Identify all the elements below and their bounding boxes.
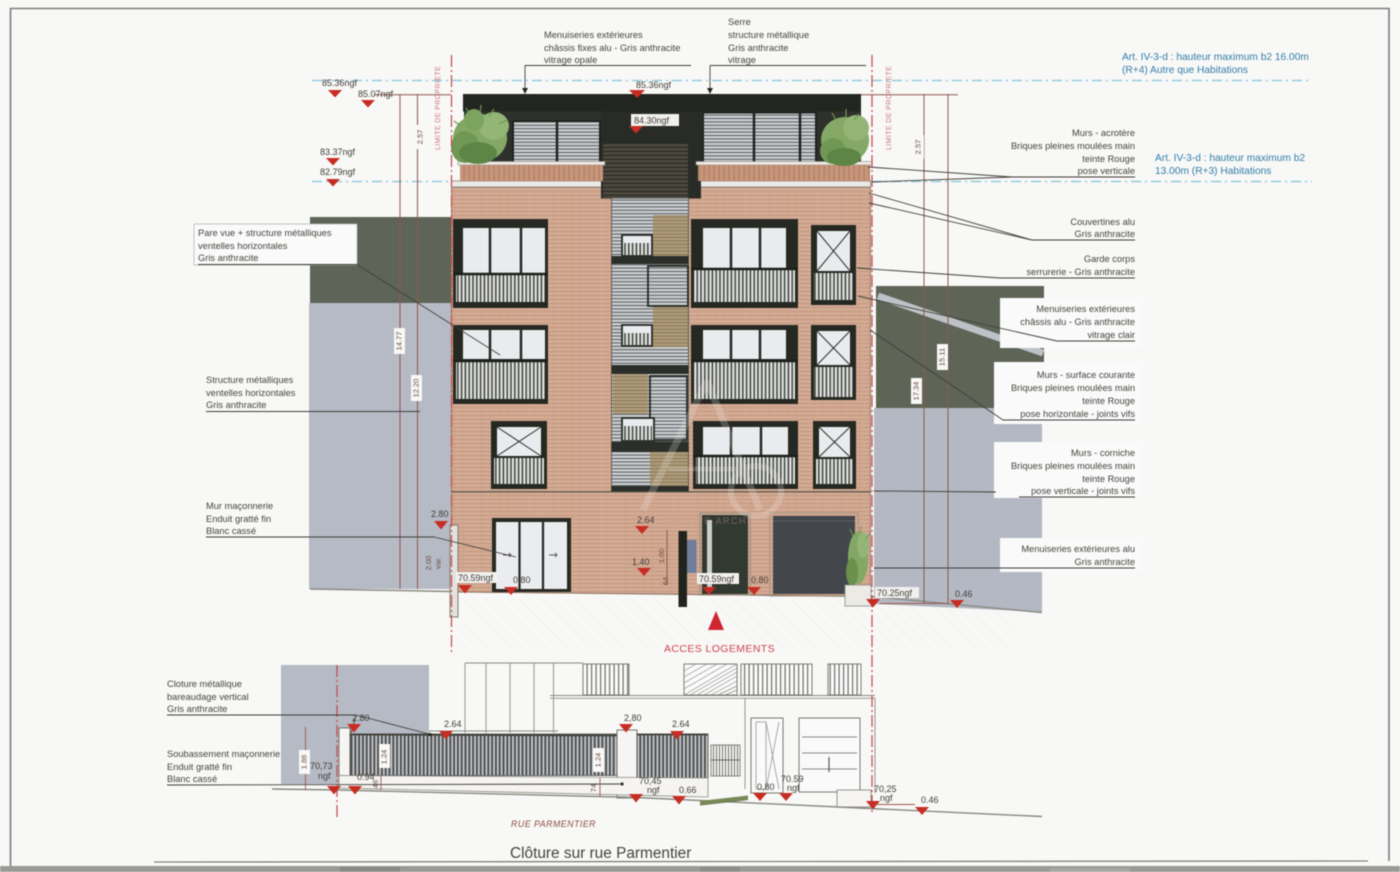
svg-text:Gris anthracite: Gris anthracite — [1075, 229, 1135, 239]
svg-text:ventelles horizontales: ventelles horizontales — [206, 388, 296, 398]
svg-text:Enduit gratté fin: Enduit gratté fin — [167, 762, 232, 772]
svg-text:1.86: 1.86 — [300, 755, 309, 770]
svg-text:ngf: ngf — [787, 783, 800, 793]
svg-text:vitrage: vitrage — [728, 55, 756, 65]
svg-text:ventelles horizontales: ventelles horizontales — [198, 241, 288, 251]
svg-text:Briques pleines moulées main: Briques pleines moulées main — [1011, 383, 1135, 393]
svg-text:Structure métalliques: Structure métalliques — [206, 375, 294, 385]
svg-text:LIMITE DE PROPRIETE: LIMITE DE PROPRIETE — [886, 66, 893, 150]
svg-text:Murs - acrotère: Murs - acrotère — [1072, 128, 1135, 138]
svg-text:Murs - surface courante: Murs - surface courante — [1037, 370, 1135, 380]
svg-text:Murs - corniche: Murs - corniche — [1071, 448, 1135, 458]
svg-text:ngf: ngf — [647, 785, 660, 795]
svg-text:teinte Rouge: teinte Rouge — [1082, 474, 1135, 484]
svg-text:1.24: 1.24 — [380, 750, 389, 765]
svg-text:0.80: 0.80 — [751, 575, 769, 585]
svg-text:Gris anthracite: Gris anthracite — [167, 704, 227, 714]
svg-text:82.79ngf: 82.79ngf — [320, 167, 356, 177]
svg-text:LIMITE DE PROPRIETE: LIMITE DE PROPRIETE — [435, 66, 442, 150]
svg-text:85.36ngf: 85.36ngf — [636, 80, 672, 90]
svg-text:83.37ngf: 83.37ngf — [320, 147, 356, 157]
svg-text:vitrage opale: vitrage opale — [544, 55, 597, 65]
svg-text:0.46: 0.46 — [955, 589, 973, 599]
svg-text:Garde corps: Garde corps — [1084, 254, 1136, 264]
svg-text:châssis alu - Gris anthracite: châssis alu - Gris anthracite — [1020, 317, 1135, 327]
svg-text:2.80: 2.80 — [352, 713, 370, 723]
svg-text:Menuiseries extérieures: Menuiseries extérieures — [544, 30, 643, 40]
svg-text:70,73: 70,73 — [310, 761, 333, 771]
svg-text:14.77: 14.77 — [395, 331, 404, 350]
svg-text:ngf: ngf — [880, 793, 893, 803]
svg-text:Serre: Serre — [728, 17, 751, 27]
svg-text:ngf: ngf — [318, 771, 331, 781]
svg-text:Soubassement maçonnerie: Soubassement maçonnerie — [167, 749, 280, 759]
svg-text:Mur maçonnerie: Mur maçonnerie — [206, 501, 273, 511]
svg-text:Gris anthracite: Gris anthracite — [1075, 557, 1135, 567]
svg-text:2.80: 2.80 — [431, 509, 449, 519]
svg-text:Art. IV-3-d : hauteur maximum: Art. IV-3-d : hauteur maximum b2 16.00m — [1122, 52, 1309, 63]
svg-text:Pare vue + structure métalliqu: Pare vue + structure métalliques — [198, 228, 332, 238]
svg-text:2.00: 2.00 — [424, 556, 433, 571]
svg-text:(R+4) Autre que Habitations: (R+4) Autre que Habitations — [1122, 65, 1248, 76]
svg-text:Blanc cassé: Blanc cassé — [167, 774, 217, 784]
svg-text:bareaudage vertical: bareaudage vertical — [167, 692, 249, 702]
svg-text:0.80: 0.80 — [513, 575, 531, 585]
svg-text:RUE PARMENTIER: RUE PARMENTIER — [511, 819, 596, 829]
svg-text:serrurerie - Gris anthracite: serrurerie - Gris anthracite — [1027, 267, 1136, 277]
svg-text:châssis fixes alu - Gris anthr: châssis fixes alu - Gris anthracite — [544, 43, 680, 53]
svg-text:64: 64 — [661, 577, 670, 585]
svg-text:2.64: 2.64 — [672, 719, 690, 729]
svg-text:pose verticale: pose verticale — [1078, 166, 1135, 176]
svg-text:teinte Rouge: teinte Rouge — [1082, 396, 1135, 406]
svg-text:12.20: 12.20 — [412, 378, 421, 397]
svg-text:17.34: 17.34 — [912, 381, 921, 400]
svg-text:Blanc cassé: Blanc cassé — [206, 526, 256, 536]
svg-text:Gris anthracite: Gris anthracite — [206, 400, 266, 410]
svg-text:pose horizontale - joints vifs: pose horizontale - joints vifs — [1020, 409, 1135, 419]
svg-text:0.46: 0.46 — [921, 795, 939, 805]
svg-text:GROUPE ARCHI: GROUPE ARCHI — [664, 516, 751, 526]
svg-text:46: 46 — [371, 780, 380, 788]
svg-text:Couvertines alu: Couvertines alu — [1070, 217, 1135, 227]
svg-text:2,80: 2,80 — [624, 713, 642, 723]
svg-text:var.: var. — [434, 557, 443, 569]
svg-text:0.66: 0.66 — [679, 785, 697, 795]
svg-text:Briques pleines moulées main: Briques pleines moulées main — [1011, 141, 1135, 151]
svg-text:Gris anthracite: Gris anthracite — [728, 43, 788, 53]
svg-text:1.00: 1.00 — [657, 549, 666, 564]
svg-text:15.11: 15.11 — [938, 348, 947, 366]
svg-text:70.59ngf: 70.59ngf — [458, 573, 494, 583]
svg-text:70.25ngf: 70.25ngf — [877, 588, 913, 598]
svg-text:Enduit gratté fin: Enduit gratté fin — [206, 514, 271, 524]
svg-text:0,80: 0,80 — [757, 782, 775, 792]
svg-text:structure métallique: structure métallique — [728, 30, 809, 40]
svg-text:Briques pleines moulées main: Briques pleines moulées main — [1011, 461, 1135, 471]
svg-text:Gris anthracite: Gris anthracite — [198, 253, 258, 263]
svg-text:70.59ngf: 70.59ngf — [699, 574, 735, 584]
svg-text:Clôture sur rue Parmentier: Clôture sur rue Parmentier — [510, 845, 691, 862]
svg-text:85.07ngf: 85.07ngf — [358, 89, 394, 99]
svg-text:1.40: 1.40 — [632, 557, 650, 567]
svg-text:Menuiseries extérieures alu: Menuiseries extérieures alu — [1021, 544, 1135, 554]
svg-text:74: 74 — [589, 784, 598, 792]
svg-text:85.36ngf: 85.36ngf — [322, 78, 358, 88]
svg-text:ACCES LOGEMENTS: ACCES LOGEMENTS — [664, 643, 775, 655]
svg-text:84.30ngf: 84.30ngf — [634, 116, 670, 126]
svg-text:1.24: 1.24 — [594, 753, 603, 768]
svg-text:Menuiseries extérieures: Menuiseries extérieures — [1036, 304, 1135, 314]
svg-text:teinte Rouge: teinte Rouge — [1082, 154, 1135, 164]
svg-text:pose verticale - joints vifs: pose verticale - joints vifs — [1031, 486, 1135, 496]
svg-text:2.57: 2.57 — [416, 130, 425, 145]
svg-text:13.00m (R+3) Habitations: 13.00m (R+3) Habitations — [1155, 166, 1271, 177]
svg-text:2.64: 2.64 — [444, 719, 462, 729]
svg-text:2.64: 2.64 — [637, 515, 655, 525]
svg-text:2.57: 2.57 — [914, 140, 923, 155]
svg-text:vitrage clair: vitrage clair — [1087, 330, 1135, 340]
svg-text:Cloture métallique: Cloture métallique — [167, 679, 242, 689]
svg-text:Art. IV-3-d : hauteur maximum: Art. IV-3-d : hauteur maximum b2 — [1155, 153, 1305, 164]
